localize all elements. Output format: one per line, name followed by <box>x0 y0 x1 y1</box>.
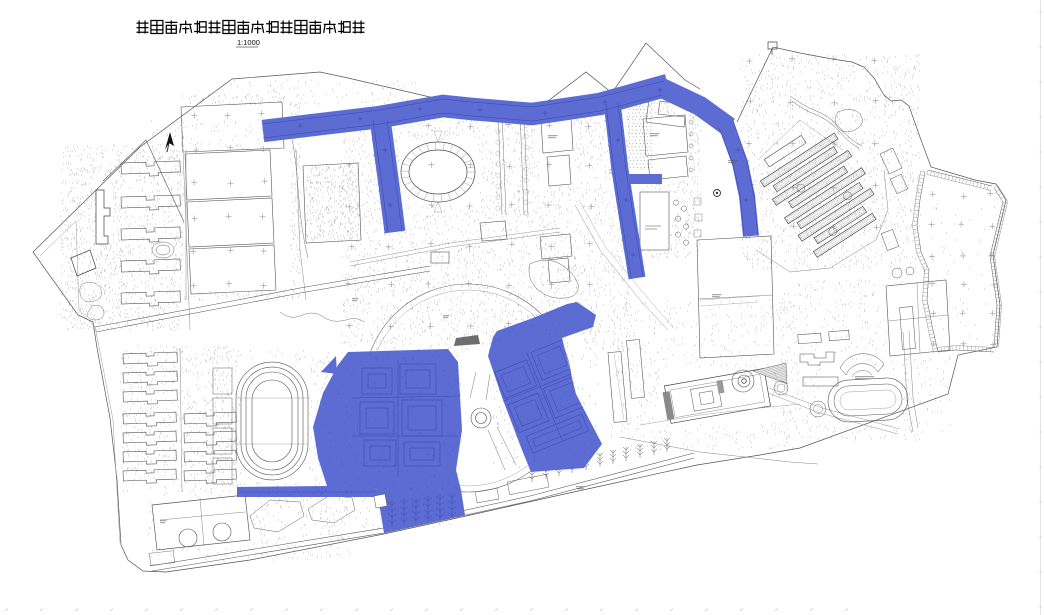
svg-text:1:1000: 1:1000 <box>237 38 260 47</box>
